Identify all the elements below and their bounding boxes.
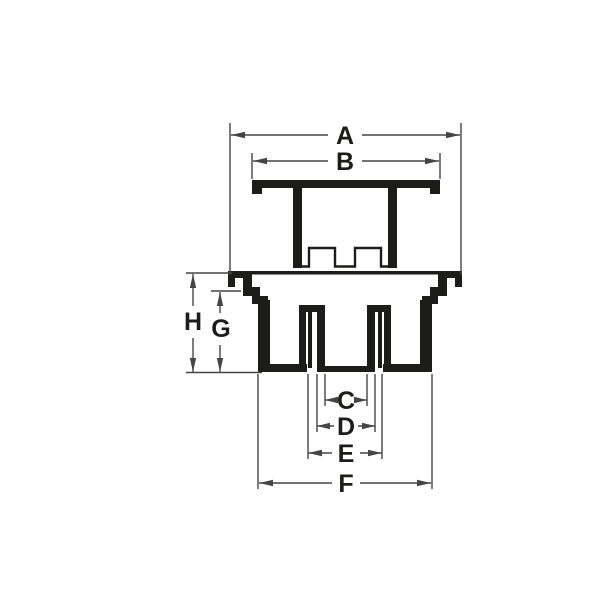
dimension-b: B bbox=[252, 148, 440, 179]
dimension-d-label: D bbox=[337, 413, 355, 441]
dimension-a: A bbox=[230, 122, 461, 275]
dim-b-arrow-left bbox=[253, 158, 267, 164]
body-right-lip-inner bbox=[438, 271, 447, 287]
tube-right-wall bbox=[367, 305, 375, 372]
cap-right-wall bbox=[388, 186, 397, 268]
skirt-right-wall bbox=[378, 311, 382, 368]
cap-flange-left-tab bbox=[252, 186, 262, 194]
dimension-c: C bbox=[325, 374, 367, 415]
body-left-step1 bbox=[243, 287, 260, 296]
dimension-a-label: A bbox=[336, 122, 354, 150]
drawing-canvas: A B C D bbox=[0, 0, 600, 600]
body-right-riser bbox=[384, 305, 391, 365]
tube-left-wall bbox=[317, 305, 325, 372]
dim-h-arrow-down bbox=[190, 358, 196, 372]
dimension-g: G bbox=[211, 291, 241, 372]
dimension-f-label: F bbox=[338, 470, 353, 498]
dim-f-arrow-left bbox=[259, 480, 273, 486]
dim-a-arrow-left bbox=[231, 132, 245, 138]
top-cap-section bbox=[252, 180, 440, 268]
dim-d-arrow-left bbox=[317, 423, 330, 429]
cap-flange-right-tab bbox=[430, 186, 440, 194]
dim-a-arrow-right bbox=[446, 132, 460, 138]
dim-e-arrow-right bbox=[368, 450, 382, 456]
body-left-lip-notch-top bbox=[235, 271, 243, 278]
dimension-c-label: C bbox=[337, 387, 355, 415]
body-right-step1 bbox=[430, 287, 447, 296]
body-right-bottom-bar bbox=[383, 364, 432, 372]
dimension-b-label: B bbox=[336, 148, 354, 176]
cap-left-wall bbox=[293, 186, 302, 268]
dim-b-arrow-right bbox=[425, 158, 439, 164]
skirt-left-wall bbox=[308, 311, 312, 368]
body-left-wall bbox=[258, 300, 270, 366]
dim-c-arrow-right bbox=[354, 397, 367, 403]
dim-e-arrow-left bbox=[308, 450, 322, 456]
body-left-riser bbox=[299, 305, 306, 365]
dim-g-arrow-down bbox=[217, 358, 223, 372]
technical-drawing: A B C D bbox=[0, 0, 600, 600]
dimension-h-label: H bbox=[184, 308, 202, 336]
dim-f-arrow-right bbox=[417, 480, 431, 486]
dim-g-arrow-up bbox=[217, 292, 223, 306]
body-flange-top-line bbox=[228, 271, 462, 275]
cap-castellation-outline bbox=[302, 248, 388, 267]
dimension-g-label: G bbox=[211, 315, 230, 343]
body-right-wall bbox=[420, 300, 432, 366]
body-left-bottom-bar bbox=[258, 364, 307, 372]
body-right-lip-notch-top bbox=[447, 271, 455, 278]
lower-body-section bbox=[228, 271, 462, 372]
dim-d-arrow-right bbox=[362, 423, 375, 429]
tube-bottom bbox=[317, 366, 375, 372]
cap-flange bbox=[252, 180, 440, 188]
dimension-e-label: E bbox=[338, 440, 355, 468]
dim-h-arrow-up bbox=[190, 274, 196, 288]
body-left-lip-inner bbox=[243, 271, 252, 287]
